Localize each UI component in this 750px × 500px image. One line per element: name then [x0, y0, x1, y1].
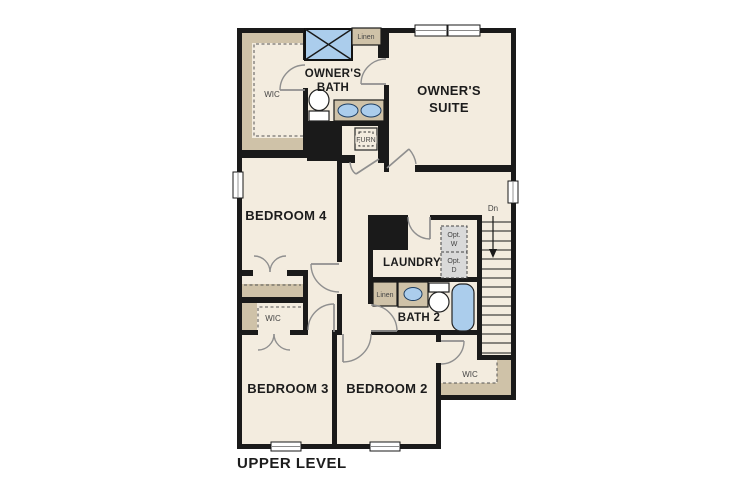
room-label-bedroom2: BEDROOM 2: [346, 381, 427, 396]
opt-washer-label-line1: Opt.: [447, 232, 460, 239]
opt-dryer-label-line1: Opt.: [447, 258, 460, 265]
stairs-down-label: Dn: [488, 204, 498, 213]
furnace-label: FURN: [356, 137, 375, 144]
room-label-laundry: LAUNDRY: [383, 257, 441, 269]
opt-dryer-label-line2: D: [451, 267, 456, 274]
room-label-owners-bath-line2: BATH: [317, 82, 349, 94]
room-label-owners-suite-line2: SUITE: [429, 100, 469, 115]
room-label-wic-bedroom3: WIC: [265, 314, 281, 323]
room-label-bedroom3: BEDROOM 3: [247, 381, 328, 396]
room-label-owners-bath-line1: OWNER'S: [305, 68, 362, 80]
floor-plan-drawing: Dn Linen FURN Opt. W Opt. D Linen: [0, 0, 750, 500]
vanity-fixture-bath2: [398, 282, 428, 307]
optional-washer-dryer: Opt. W Opt. D: [441, 226, 467, 278]
plan-title: UPPER LEVEL: [237, 455, 347, 472]
room-label-owners-wic: WIC: [264, 90, 280, 99]
bathtub-fixture: [452, 284, 474, 331]
room-label-bath2: BATH 2: [398, 312, 440, 324]
shower-fixture: [305, 29, 352, 60]
opt-washer-label-line2: W: [451, 241, 458, 248]
linen-closet-owners-bath: Linen: [352, 28, 381, 45]
linen-label: Linen: [376, 292, 393, 299]
floor-plan-page: Dn Linen FURN Opt. W Opt. D Linen: [0, 0, 750, 500]
linen-label: Linen: [357, 34, 374, 41]
room-label-bedroom4: BEDROOM 4: [245, 208, 327, 223]
toilet-fixture-owners-bath: [309, 90, 329, 122]
furnace-closet: FURN: [355, 128, 377, 150]
room-label-wic-bedroom2: WIC: [462, 370, 478, 379]
room-label-owners-suite-line1: OWNER'S: [417, 83, 481, 98]
toilet-fixture-bath2: [429, 283, 449, 312]
double-vanity-fixture: [334, 100, 384, 121]
linen-closet-bath2: Linen: [373, 282, 397, 306]
